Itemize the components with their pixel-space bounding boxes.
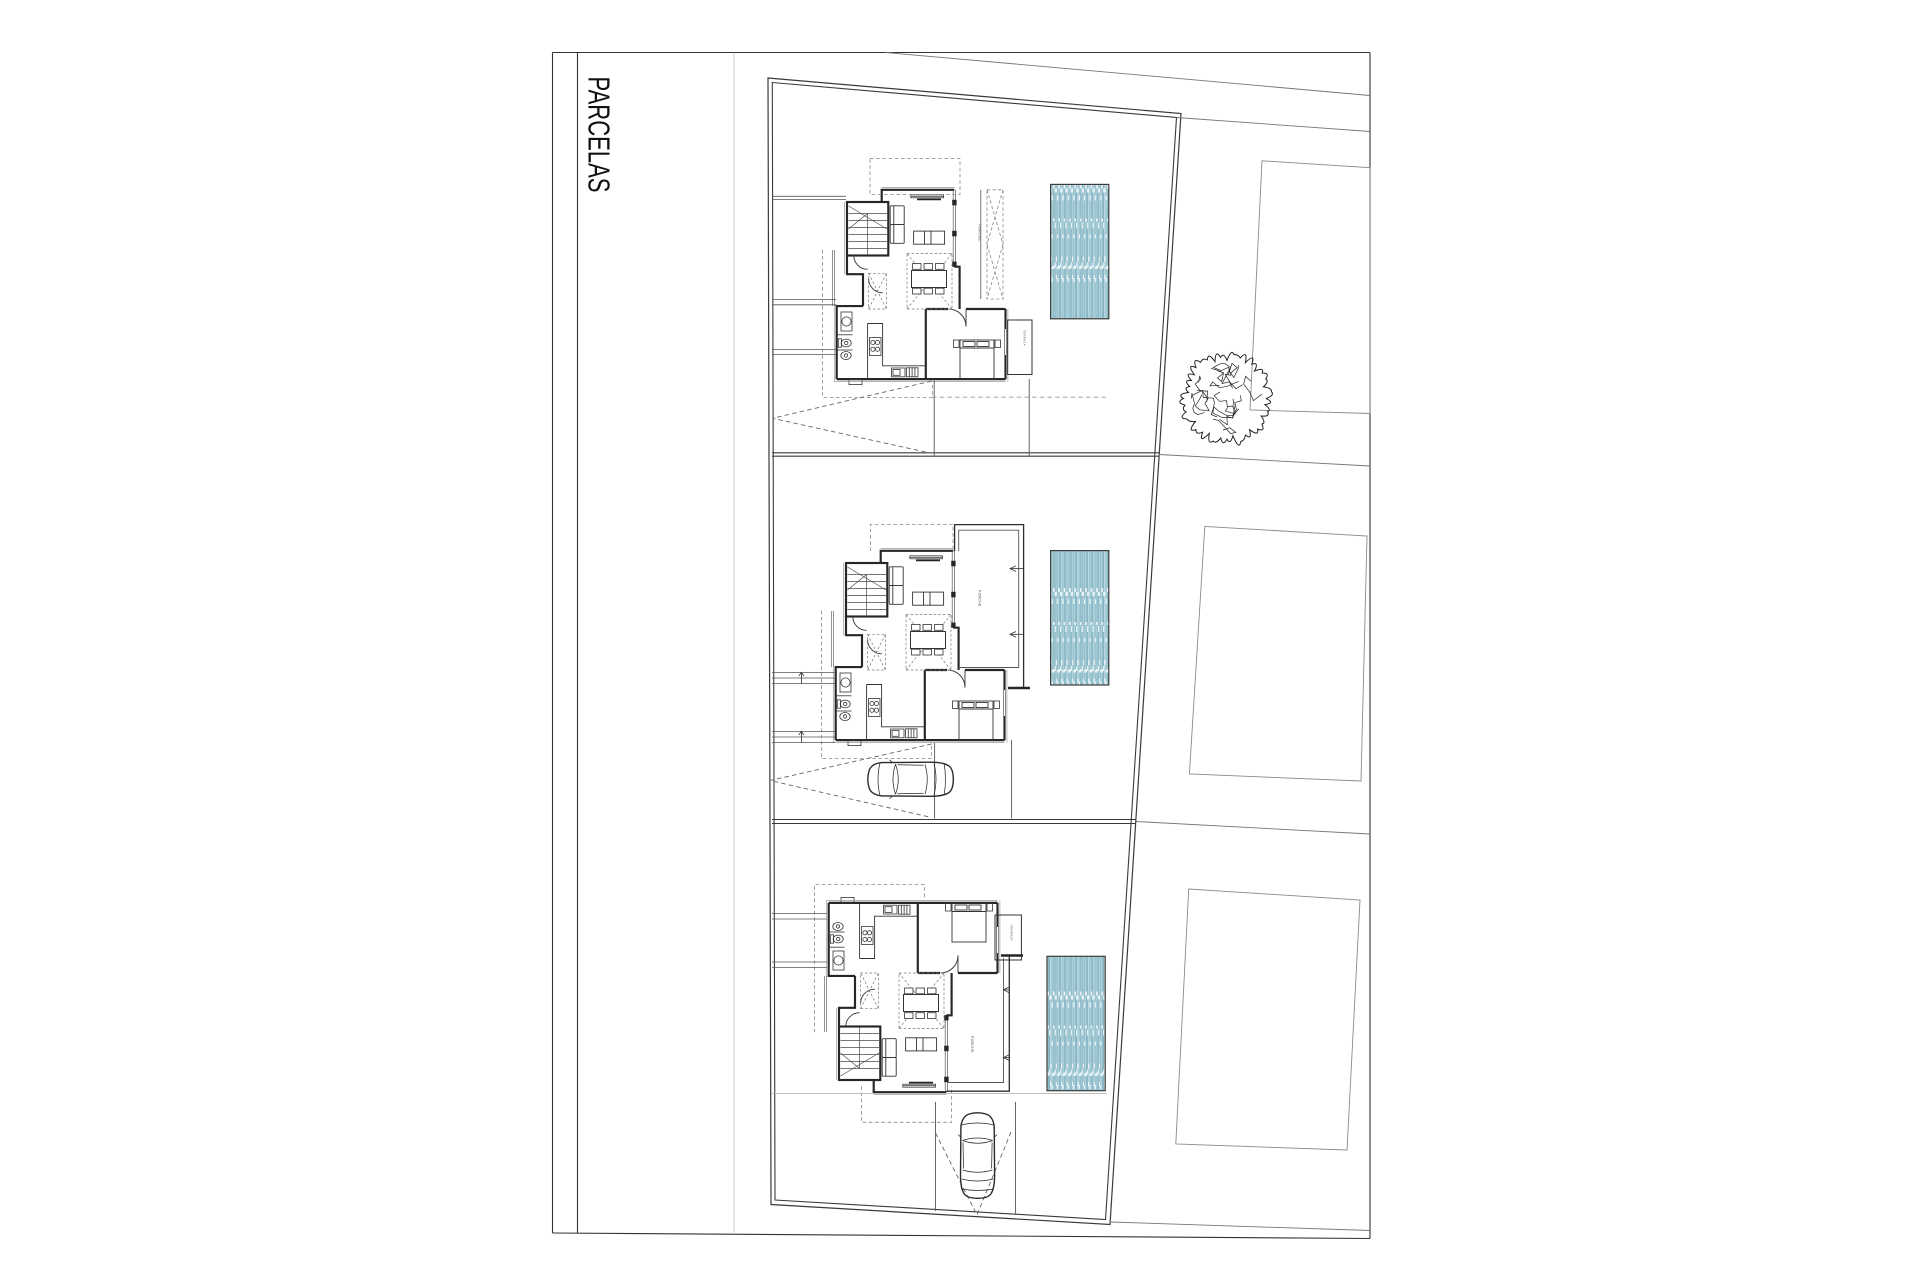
svg-text:TERRAZA: TERRAZA xyxy=(1022,330,1026,347)
svg-text:TERRAZA: TERRAZA xyxy=(1010,925,1014,942)
svg-text:PORCHE: PORCHE xyxy=(970,1036,974,1053)
svg-text:PORCHE: PORCHE xyxy=(977,590,981,607)
svg-text:PARCELAS: PARCELAS xyxy=(582,77,616,193)
svg-text:PORCHE: PORCHE xyxy=(977,225,981,242)
